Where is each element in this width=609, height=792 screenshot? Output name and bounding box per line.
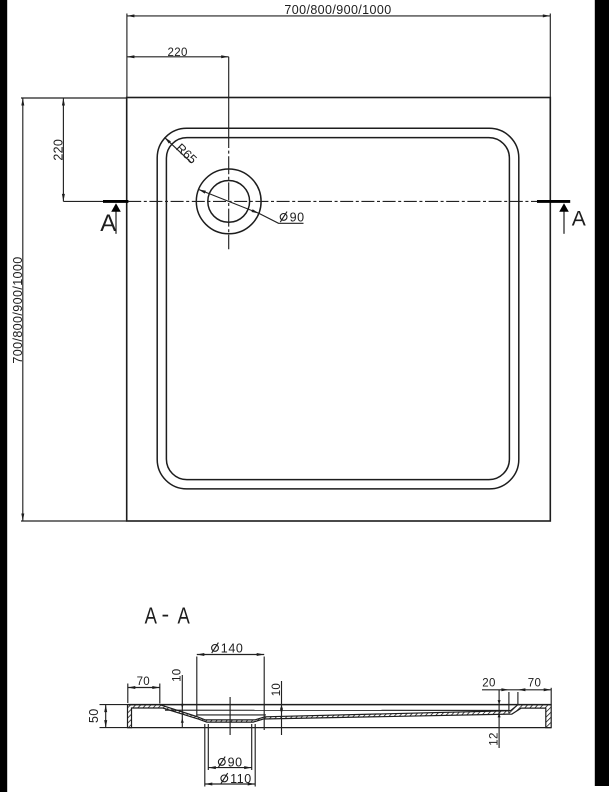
svg-text:10: 10	[171, 668, 183, 681]
svg-text:700/800/900/1000: 700/800/900/1000	[11, 256, 25, 363]
svg-text:90: 90	[228, 755, 243, 769]
svg-text:20: 20	[482, 678, 495, 690]
svg-text:70: 70	[137, 676, 150, 688]
svg-text:70: 70	[528, 678, 541, 690]
svg-text:-: -	[162, 601, 170, 627]
svg-text:A: A	[145, 602, 158, 628]
svg-text:140: 140	[221, 641, 244, 655]
svg-text:A: A	[572, 208, 586, 231]
svg-text:A: A	[178, 602, 191, 628]
svg-text:220: 220	[168, 47, 188, 59]
svg-text:220: 220	[52, 139, 66, 161]
svg-text:50: 50	[87, 708, 101, 723]
svg-text:A: A	[100, 210, 116, 237]
svg-text:12: 12	[488, 732, 500, 745]
svg-text:110: 110	[230, 772, 252, 786]
svg-text:700/800/900/1000: 700/800/900/1000	[284, 3, 391, 17]
svg-text:90: 90	[290, 211, 305, 225]
svg-text:10: 10	[271, 683, 283, 696]
